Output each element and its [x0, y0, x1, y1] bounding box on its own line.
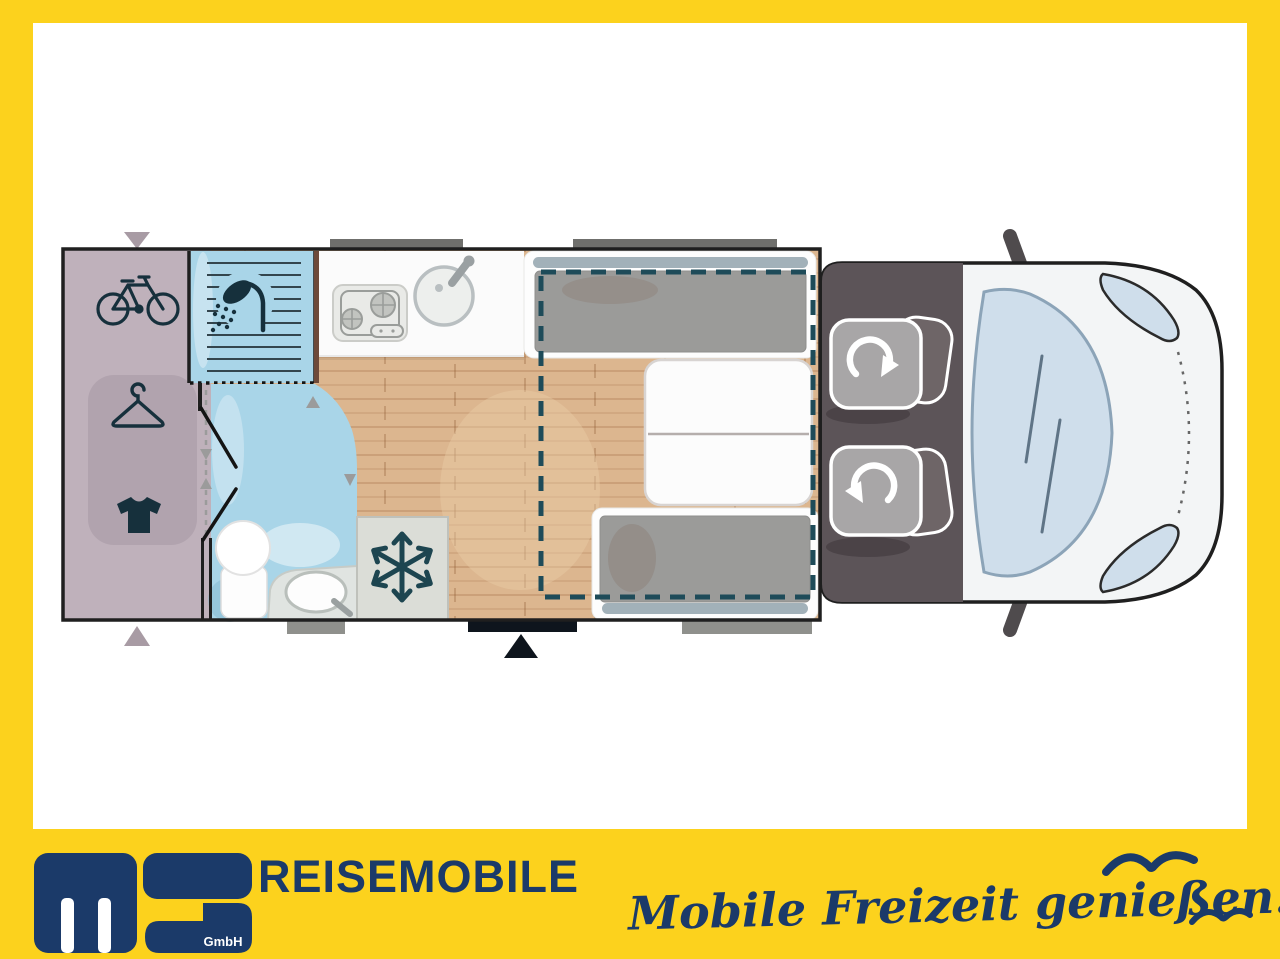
- logo-letter-m: [34, 853, 137, 953]
- floor-light-patch: [440, 390, 600, 590]
- entrance-step: [468, 620, 577, 658]
- brand-wordmark: REISEMOBILE: [258, 851, 579, 903]
- side-mirror-bottom-icon: [1010, 600, 1021, 630]
- company-suffix: GmbH: [196, 934, 250, 949]
- entrance-arrow-icon: [504, 634, 538, 658]
- washroom: [198, 383, 357, 622]
- shower-cabin: [189, 251, 315, 383]
- fridge: [357, 517, 448, 620]
- headrest-bar: [602, 603, 808, 614]
- garage-arrow-bottom-icon: [124, 626, 150, 646]
- toilet-icon: [216, 521, 270, 575]
- dinette-table: [645, 360, 812, 505]
- garage-arrow-top-icon: [124, 232, 150, 249]
- logo-letter-s-top: [143, 853, 252, 899]
- seat-base: [831, 320, 921, 408]
- seagull-large-icon: [1106, 855, 1194, 872]
- floorplan-graphic: [0, 0, 1280, 959]
- advert-canvas: REISEMOBILE GmbH Mobile Freizeit genieße…: [0, 0, 1280, 959]
- seat-base: [831, 447, 921, 535]
- kitchen-wall: [314, 251, 319, 383]
- headrest-bar: [533, 257, 808, 268]
- vehicle-front: [822, 236, 1222, 630]
- hob-icon: [333, 285, 407, 341]
